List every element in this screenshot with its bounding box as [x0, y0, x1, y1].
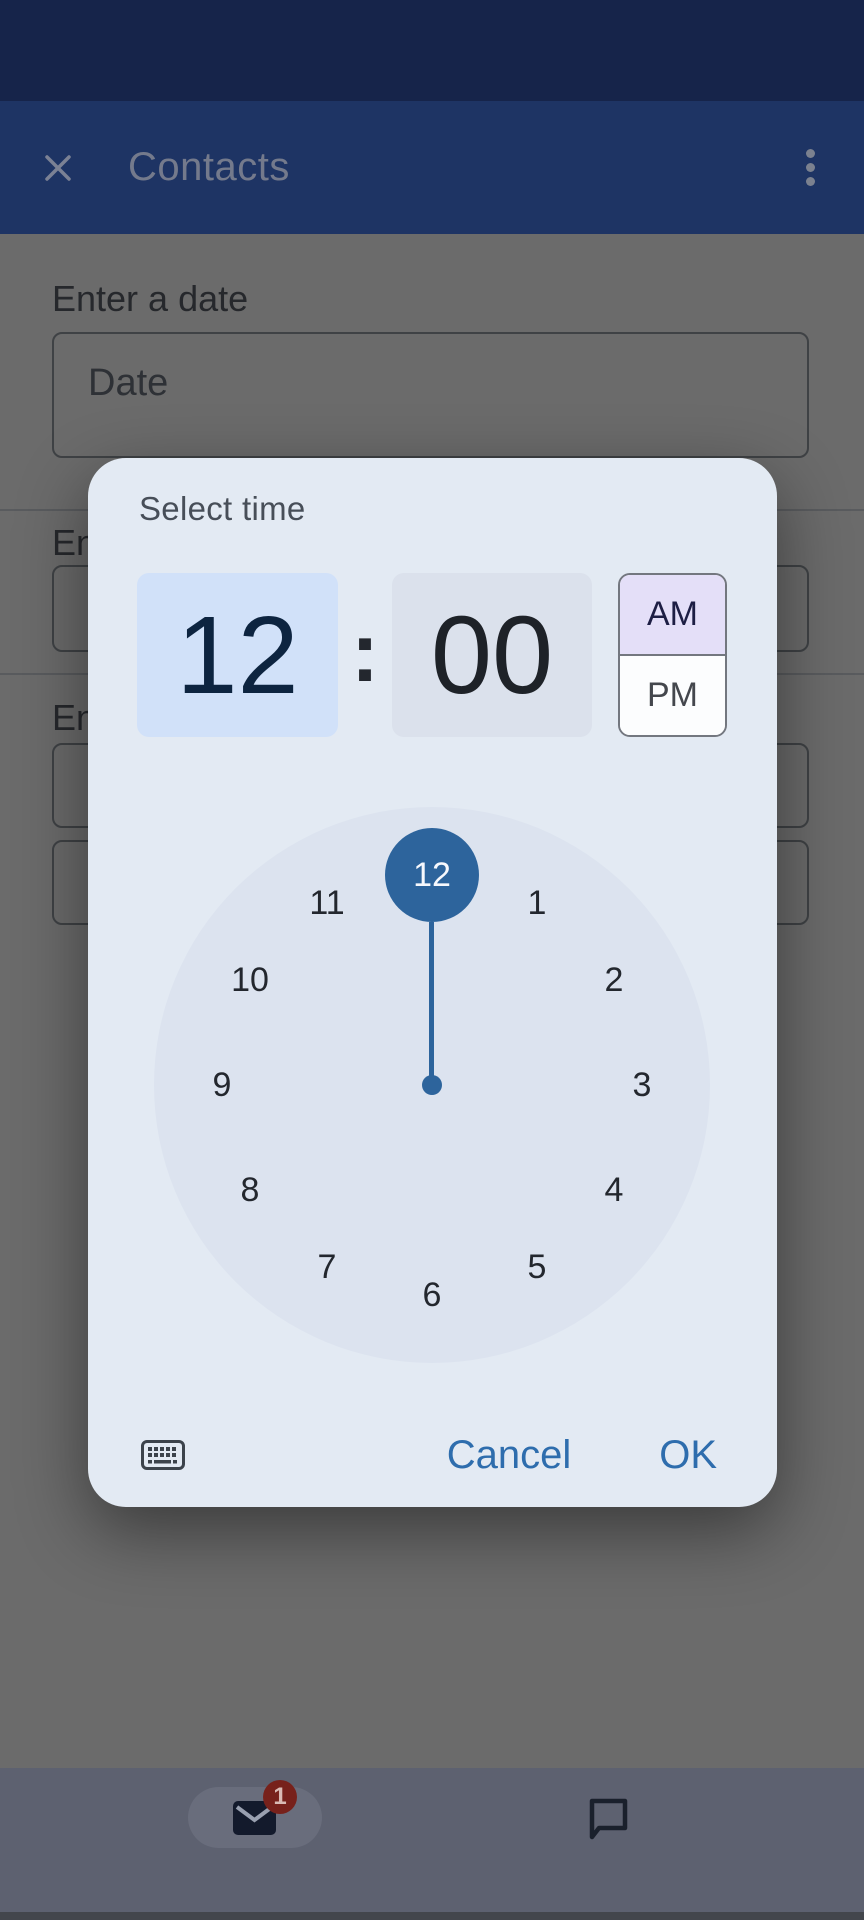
pm-button[interactable]: PM [620, 654, 725, 735]
mail-badge: 1 [263, 1780, 297, 1814]
overflow-menu-icon [796, 101, 824, 234]
date-field-label: Enter a date [52, 278, 248, 320]
clock-hour-10[interactable]: 10 [226, 956, 274, 1004]
clock-hour-5[interactable]: 5 [513, 1243, 561, 1291]
clock-dial[interactable]: 12 1 2 3 4 5 6 7 8 9 10 11 [154, 807, 710, 1363]
date-input: Date [52, 332, 809, 458]
dialog-footer: Cancel OK [141, 1433, 717, 1477]
clock-hour-3[interactable]: 3 [618, 1061, 666, 1109]
ok-button[interactable]: OK [659, 1433, 717, 1478]
clock-hour-1[interactable]: 1 [513, 879, 561, 927]
keyboard-input-icon[interactable] [141, 1440, 185, 1470]
period-toggle: AM PM [618, 573, 727, 737]
page-title: Contacts [128, 145, 290, 190]
hour-field[interactable]: 12 [137, 573, 338, 737]
time-display-row: 12 : 00 AM PM [88, 573, 777, 737]
clock-hour-7[interactable]: 7 [303, 1243, 351, 1291]
clock-hand [429, 922, 434, 1085]
minute-field[interactable]: 00 [392, 573, 592, 737]
clock-hour-6[interactable]: 6 [408, 1271, 456, 1319]
clock-center-dot [422, 1075, 442, 1095]
close-icon [38, 148, 78, 188]
chat-icon [586, 1797, 630, 1842]
gesture-bar [0, 1912, 864, 1920]
cancel-button[interactable]: Cancel [447, 1433, 572, 1478]
status-bar [0, 0, 864, 101]
clock-hour-11[interactable]: 11 [303, 879, 351, 927]
bottom-nav-bar: 1 [0, 1768, 864, 1920]
date-input-placeholder: Date [88, 362, 807, 405]
time-picker-dialog: Select time 12 : 00 AM PM 12 1 2 3 4 5 6… [88, 458, 777, 1507]
clock-hour-9[interactable]: 9 [198, 1061, 246, 1109]
time-separator: : [338, 573, 392, 731]
clock-hour-2[interactable]: 2 [590, 956, 638, 1004]
am-button[interactable]: AM [620, 575, 725, 654]
clock-hour-4[interactable]: 4 [590, 1166, 638, 1214]
dialog-title: Select time [139, 490, 306, 528]
clock-hour-8[interactable]: 8 [226, 1166, 274, 1214]
clock-hour-12-selected[interactable]: 12 [385, 828, 479, 922]
app-header: Contacts [0, 101, 864, 234]
